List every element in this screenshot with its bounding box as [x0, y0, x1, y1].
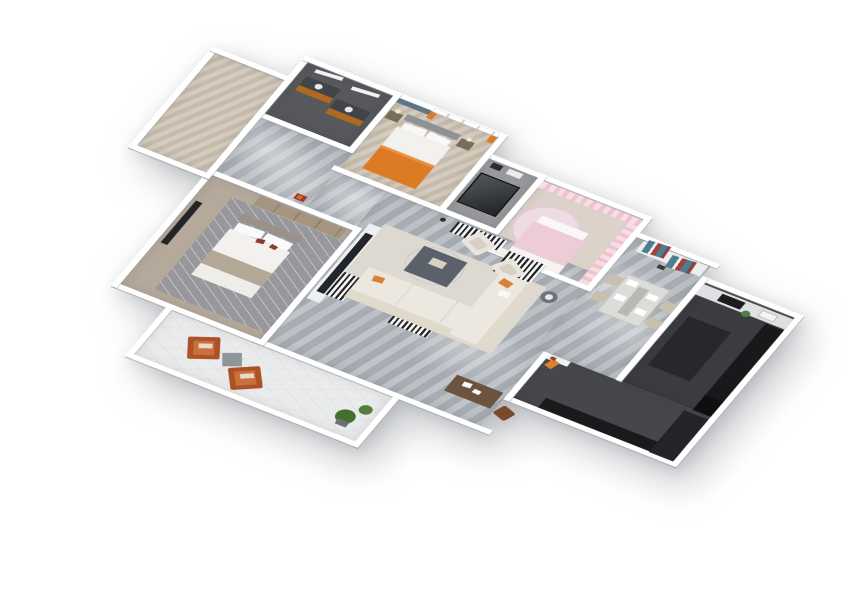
apartment-plan: [1, 32, 836, 543]
floor-plan-render: [0, 0, 844, 607]
lounge-pillow: [240, 373, 254, 379]
cube-side-table: [222, 353, 242, 366]
lounge-pillow: [198, 343, 212, 348]
